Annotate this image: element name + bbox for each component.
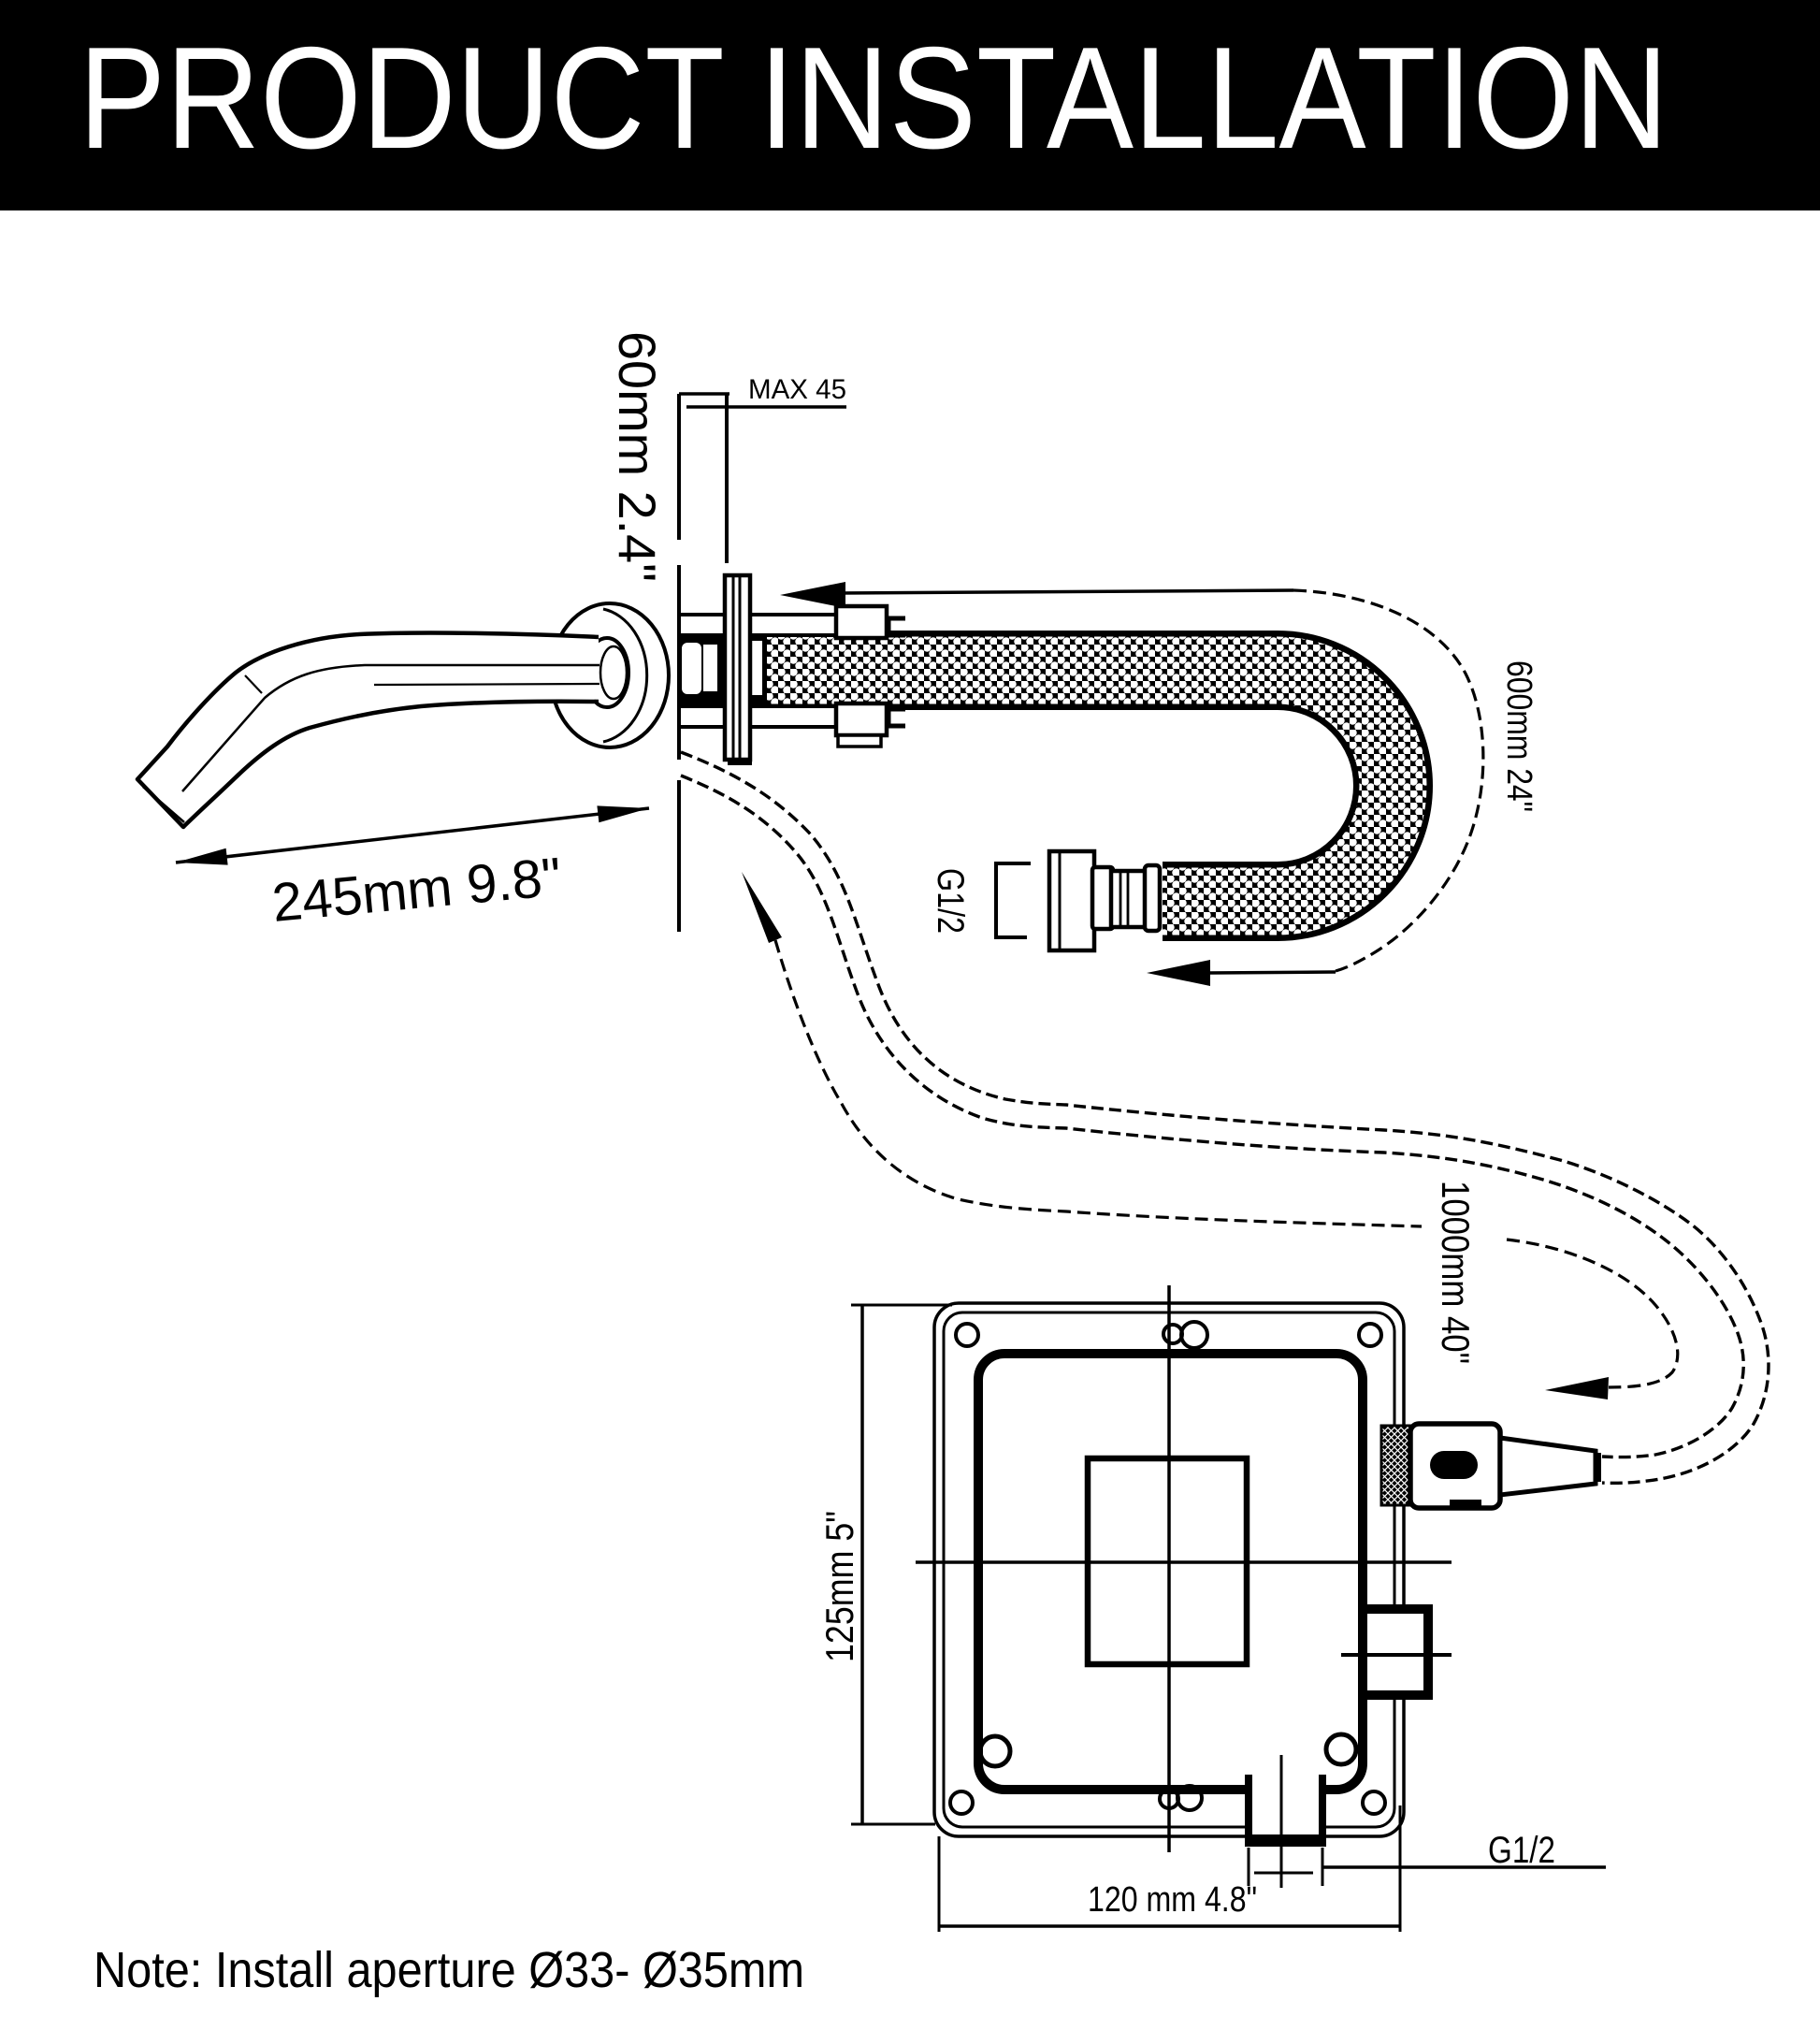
svg-text:60mm 2.4": 60mm 2.4" — [608, 331, 667, 582]
svg-text:G1/2: G1/2 — [1488, 1830, 1555, 1871]
svg-text:1000mm 40": 1000mm 40" — [1434, 1181, 1478, 1364]
svg-text:Note: Install aperture Ø33- Ø3: Note: Install aperture Ø33- Ø35mm — [94, 1942, 804, 1998]
svg-text:G1/2: G1/2 — [930, 868, 971, 934]
svg-text:120 mm 4.8": 120 mm 4.8" — [1088, 1880, 1257, 1920]
svg-text:600mm 24": 600mm 24" — [1499, 660, 1538, 812]
svg-text:PRODUCT INSTALLATION: PRODUCT INSTALLATION — [79, 17, 1668, 179]
svg-text:MAX 45: MAX 45 — [748, 374, 846, 405]
svg-text:125mm 5": 125mm 5" — [817, 1511, 861, 1662]
